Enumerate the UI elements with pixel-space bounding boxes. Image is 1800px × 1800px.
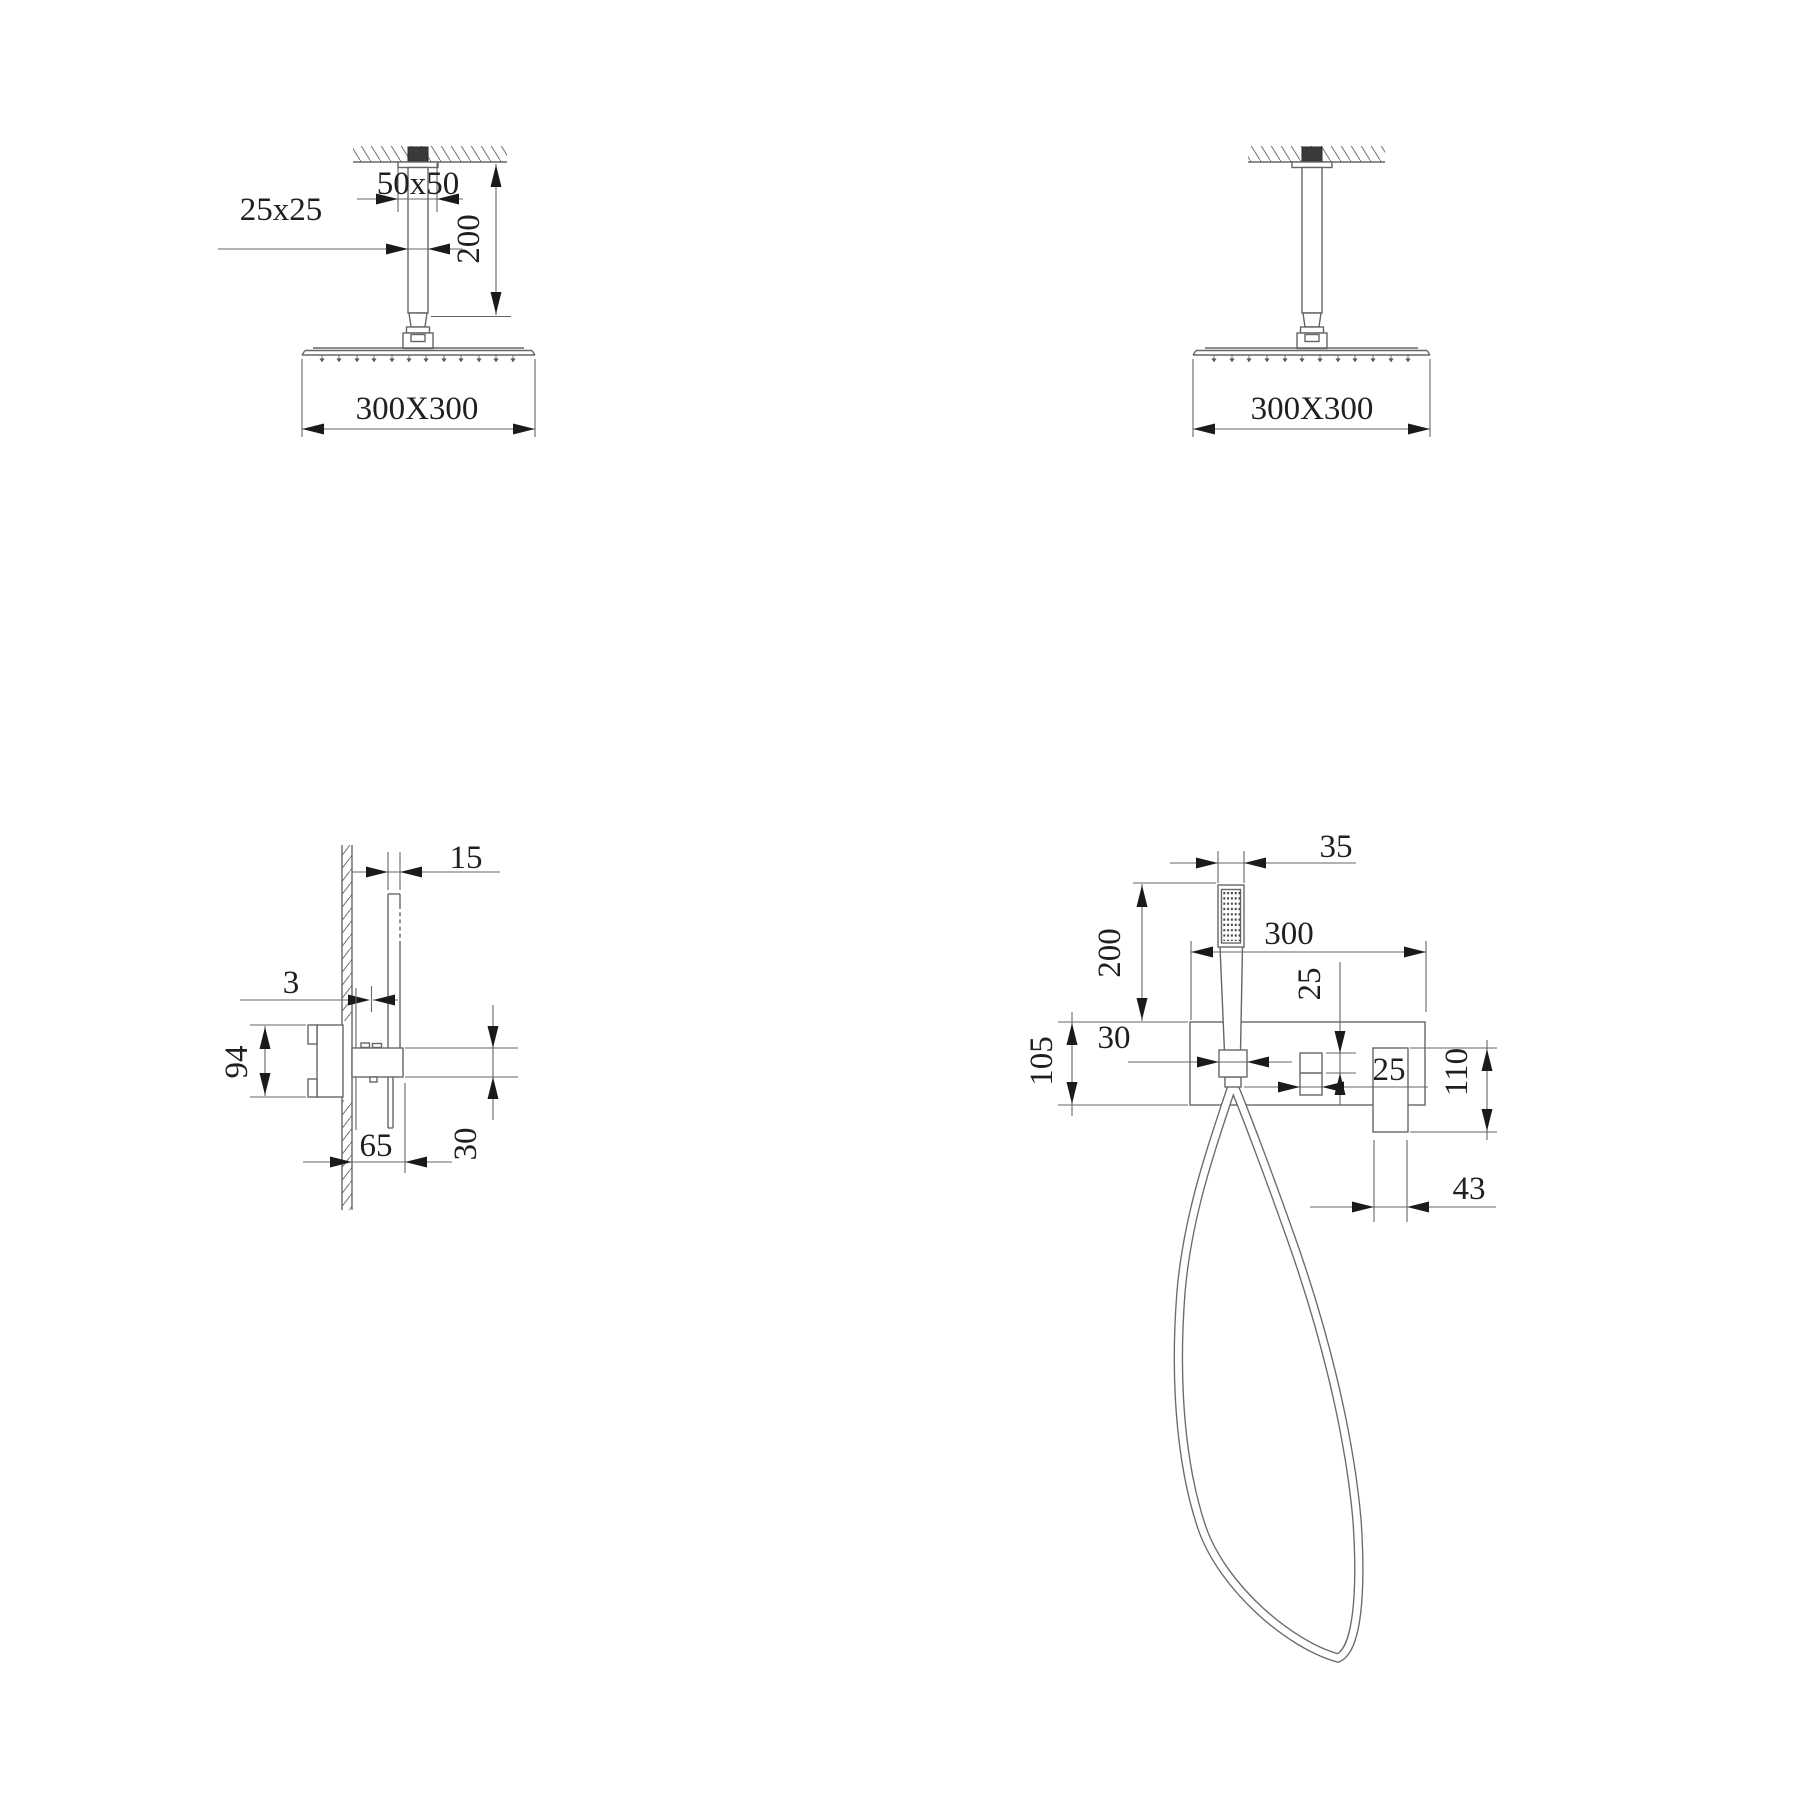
dim-arrow-icon bbox=[386, 244, 408, 255]
arm-connector bbox=[1297, 333, 1327, 349]
trim-detail bbox=[361, 1043, 370, 1048]
dim-label-spout: 65 bbox=[360, 1128, 393, 1164]
dim-arrow-icon bbox=[260, 1073, 271, 1095]
arm-nut bbox=[1301, 327, 1324, 333]
arm-adapter bbox=[409, 313, 427, 327]
dim-arrow-icon bbox=[1067, 1023, 1078, 1045]
shower-hose bbox=[1178, 1086, 1358, 1658]
ceiling-mount-stub bbox=[1302, 147, 1322, 162]
dim-label-head: 300X300 bbox=[356, 391, 479, 427]
dim-label-outlet: 25 bbox=[1373, 1052, 1406, 1088]
dim-label-elbow: 110 bbox=[1439, 1048, 1475, 1096]
dim-label-flange: 50x50 bbox=[377, 166, 460, 202]
valve-body bbox=[317, 1025, 343, 1097]
dim-arrow-icon bbox=[1407, 1202, 1429, 1213]
dim-arrow-icon bbox=[1482, 1049, 1493, 1071]
shower-arm bbox=[1302, 168, 1322, 314]
dim-arrow-icon bbox=[1137, 885, 1148, 907]
dim-label-drop: 200 bbox=[1092, 928, 1128, 978]
spout-step bbox=[370, 1077, 377, 1082]
hand-shower-holder bbox=[1219, 1050, 1247, 1077]
dim-label-gap: 3 bbox=[283, 965, 300, 1001]
dim-arrow-icon bbox=[1482, 1109, 1493, 1131]
trim-detail bbox=[373, 1044, 382, 1048]
technical-drawing-page: 50x50 25x25 200 300X300 bbox=[0, 0, 1800, 1800]
dim-arrow-icon bbox=[1244, 858, 1266, 869]
dim-label-plate-height: 105 bbox=[1024, 1036, 1060, 1086]
shower-valve-front-diagram: 35 200 300 25 30 25 bbox=[1024, 829, 1497, 1658]
dim-arrow-icon bbox=[1193, 424, 1215, 435]
hand-shower-side bbox=[388, 894, 400, 1048]
dim-arrow-icon bbox=[491, 165, 502, 187]
valve-tab bbox=[308, 1025, 317, 1044]
dim-arrow-icon bbox=[1137, 998, 1148, 1020]
dim-arrow-icon bbox=[1191, 947, 1213, 958]
wall-hatch bbox=[342, 845, 352, 1021]
dim-label-plate-width: 300 bbox=[1264, 916, 1314, 952]
dim-label-handshower: 35 bbox=[1320, 829, 1353, 865]
ceiling-mount-stub bbox=[408, 147, 428, 162]
dim-arrow-icon bbox=[348, 995, 370, 1006]
dim-label-arm: 25x25 bbox=[240, 192, 323, 228]
outlet-box bbox=[1300, 1053, 1322, 1095]
dim-arrow-icon bbox=[373, 995, 395, 1006]
dim-label-drop: 200 bbox=[451, 214, 487, 264]
dim-arrow-icon bbox=[1067, 1082, 1078, 1104]
arm-nut bbox=[407, 327, 430, 333]
valve-tab bbox=[308, 1079, 317, 1097]
dim-arrow-icon bbox=[491, 292, 502, 314]
wall-hatch bbox=[342, 1100, 352, 1210]
shower-valve-side-diagram: 15 3 94 bbox=[219, 840, 518, 1210]
ceiling-shower-right-diagram: 300X300 bbox=[1193, 146, 1430, 437]
ceiling-shower-left-diagram: 50x50 25x25 200 300X300 bbox=[218, 146, 535, 437]
spray-nozzles bbox=[1211, 356, 1410, 363]
dim-arrow-icon bbox=[1408, 424, 1430, 435]
dim-arrow-icon bbox=[428, 244, 450, 255]
spray-nozzles bbox=[319, 356, 515, 363]
dim-arrow-icon bbox=[302, 424, 324, 435]
arm-adapter bbox=[1303, 313, 1321, 327]
ceiling-hatch bbox=[353, 146, 507, 162]
dim-arrow-icon bbox=[400, 867, 422, 878]
dim-arrow-icon bbox=[366, 867, 388, 878]
dim-arrow-icon bbox=[513, 424, 535, 435]
dim-label-outlet-offset: 25 bbox=[1292, 968, 1328, 1001]
dim-label-spout-height: 30 bbox=[448, 1128, 484, 1161]
spout-block bbox=[352, 1048, 403, 1077]
dim-label-head: 300X300 bbox=[1251, 391, 1374, 427]
dim-arrow-icon bbox=[1196, 858, 1218, 869]
dim-arrow-icon bbox=[1404, 947, 1426, 958]
dim-label-elbow-width: 43 bbox=[1453, 1171, 1486, 1207]
dim-label-handshower: 15 bbox=[450, 840, 483, 876]
dim-arrow-icon bbox=[405, 1157, 427, 1168]
dim-label-body: 94 bbox=[219, 1046, 255, 1079]
hose-connector-side bbox=[388, 1077, 393, 1128]
dim-label-holder: 30 bbox=[1098, 1020, 1131, 1056]
dim-arrow-icon bbox=[488, 1026, 499, 1048]
dim-arrow-icon bbox=[260, 1027, 271, 1049]
arm-flange bbox=[1292, 162, 1332, 168]
shower-installation-drawing: 50x50 25x25 200 300X300 bbox=[0, 0, 1800, 1800]
dim-arrow-icon bbox=[488, 1077, 499, 1099]
arm-connector bbox=[403, 333, 433, 349]
dim-arrow-icon bbox=[1352, 1202, 1374, 1213]
holder-neck bbox=[1225, 1077, 1241, 1087]
